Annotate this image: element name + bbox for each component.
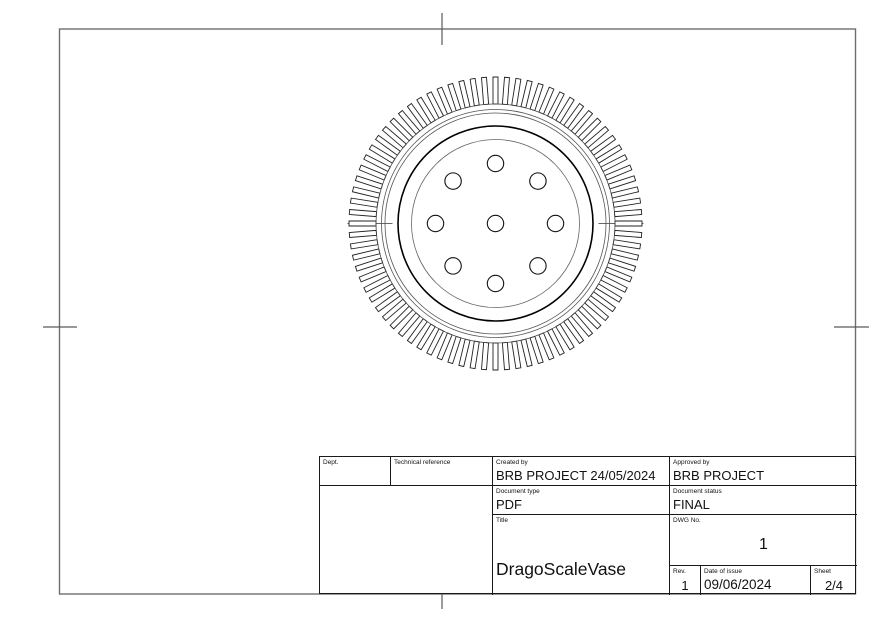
sheet-label: Sheet <box>811 566 857 575</box>
document-status-cell: Document status FINAL <box>670 486 857 515</box>
document-type-cell: Document type PDF <box>493 486 670 515</box>
dept-value <box>320 483 390 485</box>
rev-label: Rev. <box>670 566 700 575</box>
technical-reference-cell: Technical reference <box>391 457 493 486</box>
date-of-issue-label: Date of issue <box>701 566 810 575</box>
technical-reference-value <box>391 483 492 485</box>
created-by-cell: Created by BRB PROJECT 24/05/2024 <box>493 457 670 486</box>
dwg-no-value: 1 <box>759 536 768 554</box>
dwg-no-cell: DWG No. 1 <box>670 515 857 566</box>
notes-cell <box>320 486 493 595</box>
dwg-no-label: DWG No. <box>670 515 857 524</box>
created-by-label: Created by <box>493 457 669 466</box>
dept-label: Dept. <box>320 457 390 466</box>
title-block: Dept. Technical reference Created by BRB… <box>319 456 856 594</box>
date-of-issue-value: 09/06/2024 <box>701 578 810 595</box>
sheet-cell: Sheet 2/4 <box>811 566 857 595</box>
sheet-value: 2/4 <box>825 579 843 595</box>
document-status-label: Document status <box>670 486 857 495</box>
created-by-value: BRB PROJECT 24/05/2024 <box>493 469 669 485</box>
drawing-sheet-page: Dept. Technical reference Created by BRB… <box>0 0 885 625</box>
document-status-value: FINAL <box>670 498 857 514</box>
approved-by-label: Approved by <box>670 457 857 466</box>
title-cell: Title DragoScaleVase <box>493 515 670 595</box>
approved-by-value: BRB PROJECT <box>670 469 857 485</box>
title-label: Title <box>493 515 669 524</box>
rev-value: 1 <box>681 579 688 595</box>
title-value: DragoScaleVase <box>493 560 669 595</box>
date-of-issue-cell: Date of issue 09/06/2024 <box>701 566 811 595</box>
document-type-label: Document type <box>493 486 669 495</box>
rev-cell: Rev. 1 <box>670 566 701 595</box>
document-type-value: PDF <box>493 498 669 514</box>
dept-cell: Dept. <box>320 457 391 486</box>
technical-reference-label: Technical reference <box>391 457 492 466</box>
approved-by-cell: Approved by BRB PROJECT <box>670 457 857 486</box>
